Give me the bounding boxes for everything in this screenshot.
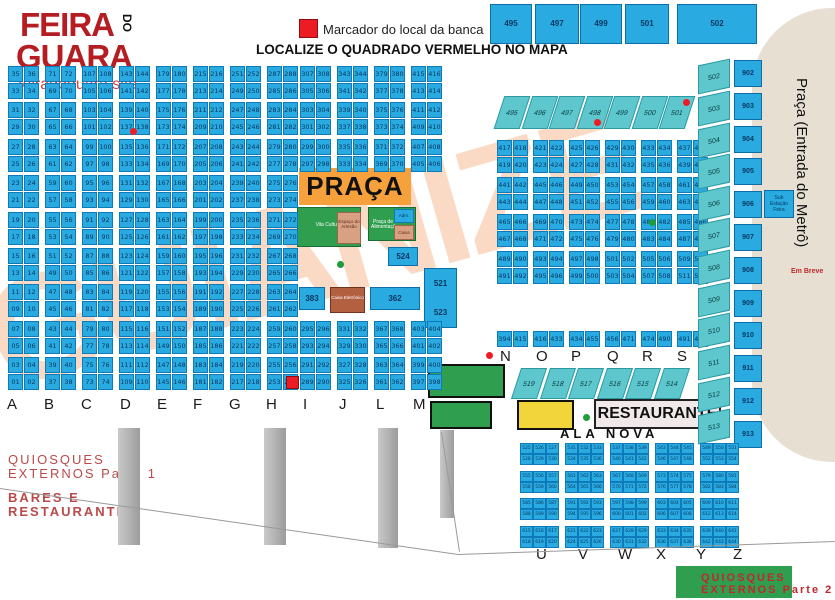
stall-cell: 217 [230, 374, 245, 390]
stall-cell: 566 [591, 482, 604, 493]
stall-cell: 132 [135, 175, 150, 191]
stall-cell: 230 [246, 265, 261, 281]
em-breve-label: Em Breve [791, 268, 823, 275]
stall-cell: 120 [135, 284, 150, 300]
column-letter: J [339, 396, 355, 412]
stall-cell: 258 [283, 338, 298, 354]
stall-cell: 587 [546, 498, 559, 509]
stall-cell: 544 [668, 443, 681, 454]
stall-cell: 497 [569, 251, 584, 267]
stall-cell: 574 [668, 471, 681, 482]
stall-cell: 270 [283, 229, 298, 245]
stall-cell: 375 [374, 102, 389, 118]
stall-cell: 333 [337, 156, 352, 172]
stall-cell: 129 [119, 192, 134, 208]
stall-cell: 272 [283, 212, 298, 228]
stall-cell: 58 [61, 192, 76, 208]
stall-cell: 575 [681, 471, 694, 482]
stall-cell: 135 [119, 139, 134, 155]
stall-cell: 204 [209, 175, 224, 191]
stall-cell: 102 [98, 119, 113, 135]
stall-cell: 282 [283, 119, 298, 135]
stall-cell: 276 [283, 175, 298, 191]
stall-cell: 256 [283, 357, 298, 373]
stall-cell: 231 [230, 248, 245, 264]
stall-cell: 527 [546, 443, 559, 454]
stall-cell: 403 [411, 321, 426, 337]
column-letter: U [536, 546, 552, 562]
stall-cell: 08 [24, 321, 39, 337]
stall-cell: 169 [156, 156, 171, 172]
stall-cell: 641 [726, 526, 739, 537]
stall-cell: 75 [82, 357, 97, 373]
stall-cell: 224 [246, 321, 261, 337]
stall-cell: 118 [135, 301, 150, 317]
stall-cell: 340 [353, 102, 368, 118]
stall-cell: 537 [610, 443, 623, 454]
stall-cell: 583 [713, 482, 726, 493]
stall-cell: 569 [636, 471, 649, 482]
stall-cell: 240 [246, 175, 261, 191]
stall-cell: 912 [734, 388, 762, 415]
stall-cell: 582 [700, 482, 713, 493]
stall-cell: 490 [513, 251, 528, 267]
stall-cell: 640 [713, 526, 726, 537]
stall-cell: 29 [8, 119, 23, 135]
stall-cell: 295 [300, 321, 315, 337]
legend-marker-swatch [299, 19, 318, 38]
stall-cell: 455 [585, 331, 600, 347]
stall-cell: 477 [605, 214, 620, 230]
column-letter: I [303, 396, 319, 412]
stall-cell: 616 [533, 526, 546, 537]
stall-cell: 10 [24, 301, 39, 317]
stall-cell: 536 [591, 454, 604, 465]
stall-cell: 97 [82, 156, 97, 172]
stall-cell: 400 [427, 357, 442, 373]
stall-cell: 68 [61, 102, 76, 118]
praca-title: PRAÇA [306, 171, 403, 201]
stall-cell: 127 [119, 212, 134, 228]
stall-cell: 241 [230, 156, 245, 172]
stall-cell: 491 [677, 331, 692, 347]
stall-cell: 260 [283, 321, 298, 337]
stall-cell: 501 [605, 251, 620, 267]
stall-cell: 70 [61, 83, 76, 99]
stall-cell: 502 [621, 251, 636, 267]
stall-cell: 12 [24, 284, 39, 300]
stall-cell: 434 [569, 331, 584, 347]
stall-cell: 443 [497, 194, 512, 210]
stall-cell: 72 [61, 66, 76, 82]
stall-cell: 128 [135, 212, 150, 228]
stall-cell: 485 [677, 214, 692, 230]
stall-cell: 371 [374, 139, 389, 155]
stall-cell: 40 [61, 357, 76, 373]
stall-cell: 263 [267, 284, 282, 300]
stall-cell: 436 [657, 157, 672, 173]
stall-cell: 605 [681, 498, 694, 509]
stall-cell: 484 [657, 231, 672, 247]
stall-cell: 161 [156, 229, 171, 245]
stall-cell: 450 [585, 177, 600, 193]
stall-cell: 415 [513, 331, 528, 347]
stall-cell: 586 [533, 498, 546, 509]
column-letter: M [413, 396, 429, 412]
stall-cell: 435 [641, 157, 656, 173]
stall-cell: 123 [119, 248, 134, 264]
stall-cell: 117 [119, 301, 134, 317]
stall-cell: 335 [337, 139, 352, 155]
stall-cell: 34 [24, 83, 39, 99]
stall-cell: 25 [8, 156, 23, 172]
stall-cell: 152 [172, 321, 187, 337]
caixa-chip: Caixa [394, 225, 414, 240]
stall-cell: 601 [623, 509, 636, 520]
stall-cell: 74 [98, 374, 113, 390]
column-letter: L [376, 396, 392, 412]
stall-cell: 542 [636, 454, 649, 465]
entrance-marker [130, 128, 137, 135]
stall-cell: 413 [411, 83, 426, 99]
stall-cell: 196 [209, 248, 224, 264]
stall-cell: 142 [135, 83, 150, 99]
stall-cell: 367 [374, 321, 389, 337]
column-letter: G [229, 396, 245, 412]
stall-cell: 561 [565, 471, 578, 482]
stall-cell: 180 [172, 66, 187, 82]
stall-cell: 577 [668, 482, 681, 493]
stall-cell: 564 [565, 482, 578, 493]
stall-cell: 233 [230, 229, 245, 245]
espaco-artesao-label: Espaço do Artesão [338, 213, 360, 229]
stall-cell: 183 [193, 357, 208, 373]
stall-cell: 535 [578, 454, 591, 465]
stall-cell: 24 [24, 175, 39, 191]
stall-cell: 437 [677, 140, 692, 156]
stall-cell: 557 [546, 471, 559, 482]
stall-cell: 165 [156, 192, 171, 208]
stall-cell: 104 [98, 102, 113, 118]
caixa-eletronico-box: Caixa Eletrônico [330, 287, 365, 313]
stall-cell: 191 [193, 284, 208, 300]
stall-cell: 108 [98, 66, 113, 82]
stall-cell: 401 [411, 338, 426, 354]
column-letter: B [44, 396, 60, 412]
stall-cell: 290 [316, 374, 331, 390]
stall-cell: 64 [61, 139, 76, 155]
stall-cell: 327 [337, 357, 352, 373]
stall-cell: 247 [230, 102, 245, 118]
stall-cell: 09 [8, 301, 23, 317]
stall-cell: 02 [24, 374, 39, 390]
stall-cell: 285 [267, 83, 282, 99]
stall-cell: 186 [209, 338, 224, 354]
stall-cell: 458 [657, 177, 672, 193]
stall-cell: 57 [45, 192, 60, 208]
stall-cell: 474 [641, 331, 656, 347]
stall-cell: 149 [156, 338, 171, 354]
stall-cell: 463 [677, 194, 692, 210]
stall-cell: 468 [513, 231, 528, 247]
stall-cell: 447 [533, 194, 548, 210]
stall-cell: 189 [193, 301, 208, 317]
column-letter: H [266, 396, 282, 412]
stall-cell: 126 [135, 229, 150, 245]
stall-cell: 111 [119, 357, 134, 373]
column-letter: R [642, 348, 658, 364]
stall-cell: 425 [569, 140, 584, 156]
stall-cell: 579 [700, 471, 713, 482]
stall-cell: 498 [585, 251, 600, 267]
ala-nova-label: ALA NOVA [560, 426, 658, 441]
stall-cell: 624 [565, 537, 578, 548]
stall-cell: 67 [45, 102, 60, 118]
stall-cell: 213 [193, 83, 208, 99]
stall-cell: 297 [300, 156, 315, 172]
stall-cell: 54 [61, 229, 76, 245]
stall-cell: 555 [520, 471, 533, 482]
column-letter: X [656, 546, 672, 562]
stall-cell: 511 [677, 268, 692, 284]
stall-cell: 455 [605, 194, 620, 210]
stall-cell: 175 [156, 102, 171, 118]
stall-cell: 156 [172, 284, 187, 300]
stall-cell: 506 [698, 186, 730, 222]
stall-cell: 168 [172, 175, 187, 191]
stall-cell: 473 [569, 214, 584, 230]
stall-cell: 609 [700, 498, 713, 509]
stall-cell: 595 [578, 509, 591, 520]
stall-cell: 456 [621, 194, 636, 210]
stall-cell: 65 [45, 119, 60, 135]
stall-cell: 404 [427, 321, 442, 337]
stall-cell: 71 [45, 66, 60, 82]
column-letter: P [571, 348, 587, 364]
stall-cell: 525 [520, 443, 533, 454]
stall-cell: 49 [45, 265, 60, 281]
stall-cell: 446 [549, 177, 564, 193]
stall-521-523: 521 523 [424, 268, 457, 328]
stall-cell: 222 [246, 338, 261, 354]
stall-cell: 286 [283, 83, 298, 99]
stall-cell: 291 [300, 357, 315, 373]
pillar [118, 428, 140, 545]
stall-cell: 632 [636, 537, 649, 548]
stall-cell: 434 [657, 140, 672, 156]
stall-cell: 603 [655, 498, 668, 509]
stall-cell: 475 [569, 231, 584, 247]
stall-cell: 22 [24, 192, 39, 208]
stall-cell: 146 [172, 374, 187, 390]
stall-cell: 611 [726, 498, 739, 509]
pillar [378, 428, 398, 548]
stall-cell: 368 [390, 321, 405, 337]
stall-cell: 39 [45, 357, 60, 373]
stall-cell: 31 [8, 102, 23, 118]
stall-cell: 44 [61, 321, 76, 337]
stall-cell: 145 [156, 374, 171, 390]
stall-cell: 540 [610, 454, 623, 465]
stall-cell: 452 [585, 194, 600, 210]
stall-cell: 60 [61, 175, 76, 191]
stall-cell: 505 [698, 154, 730, 190]
stall-cell: 599 [636, 498, 649, 509]
stall-cell: 187 [193, 321, 208, 337]
stall-cell: 226 [246, 301, 261, 317]
stall-cell: 210 [209, 119, 224, 135]
stall-cell: 344 [353, 66, 368, 82]
stall-cell: 451 [569, 194, 584, 210]
stall-cell: 232 [246, 248, 261, 264]
stall-cell: 416 [533, 331, 548, 347]
stall-cell: 511 [698, 345, 730, 381]
stall-cell: 293 [300, 338, 315, 354]
stall-cell: 07 [8, 321, 23, 337]
stall-cell: 501 [625, 4, 669, 44]
stall-cell: 119 [119, 284, 134, 300]
stall-cell: 906 [734, 191, 762, 218]
stall-cell: 262 [283, 301, 298, 317]
stall-cell: 907 [734, 224, 762, 251]
stall-cell: 507 [641, 268, 656, 284]
stall-cell: 495 [490, 4, 532, 44]
stall-cell: 33 [8, 83, 23, 99]
stall-cell: 432 [621, 157, 636, 173]
stall-cell: 423 [533, 157, 548, 173]
stall-cell: 469 [533, 214, 548, 230]
stall-cell: 342 [353, 83, 368, 99]
stall-cell: 221 [230, 338, 245, 354]
stall-cell: 479 [605, 231, 620, 247]
stall-cell: 563 [591, 471, 604, 482]
stall-cell: 623 [591, 526, 604, 537]
stall-cell: 589 [533, 509, 546, 520]
stall-cell: 43 [45, 321, 60, 337]
stall-cell: 331 [337, 321, 352, 337]
stall-cell: 252 [246, 66, 261, 82]
stall-cell: 96 [98, 175, 113, 191]
column-letter: C [81, 396, 97, 412]
stall-cell: 572 [636, 482, 649, 493]
stall-cell: 442 [513, 177, 528, 193]
stall-cell: 531 [565, 443, 578, 454]
stall-cell: 573 [655, 471, 668, 482]
stall-cell: 550 [713, 443, 726, 454]
stall-cell: 578 [681, 482, 694, 493]
stall-cell: 911 [734, 355, 762, 382]
stall-cell: 197 [193, 229, 208, 245]
stall-cell: 136 [135, 139, 150, 155]
stall-cell: 296 [316, 321, 331, 337]
column-letter: A [7, 396, 23, 412]
stall-cell: 334 [353, 156, 368, 172]
stall-523-label: 523 [425, 308, 456, 317]
stall-cell: 185 [193, 338, 208, 354]
stall-cell: 414 [427, 83, 442, 99]
column-letter: S [677, 348, 693, 364]
stall-cell: 164 [172, 212, 187, 228]
stall-cell: 602 [636, 509, 649, 520]
stall-cell: 610 [713, 498, 726, 509]
stall-cell: 66 [61, 119, 76, 135]
stall-cell: 61 [45, 156, 60, 172]
stall-cell: 539 [636, 443, 649, 454]
stall-cell: 402 [427, 338, 442, 354]
stall-cell: 151 [156, 321, 171, 337]
stall-cell: 101 [82, 119, 97, 135]
stall-cell: 225 [230, 301, 245, 317]
stall-cell: 283 [267, 102, 282, 118]
stall-cell: 590 [546, 509, 559, 520]
stall-cell: 158 [172, 265, 187, 281]
stall-cell: 558 [520, 482, 533, 493]
stall-cell: 19 [8, 212, 23, 228]
stall-cell: 444 [513, 194, 528, 210]
stall-cell: 363 [374, 357, 389, 373]
stall-cell: 379 [374, 66, 389, 82]
stall-362: 362 [370, 287, 420, 310]
stall-cell: 910 [734, 322, 762, 349]
stall-cell: 903 [734, 93, 762, 120]
column-letter: O [536, 348, 552, 364]
stall-cell: 482 [657, 214, 672, 230]
stall-cell: 493 [533, 251, 548, 267]
stall-cell: 430 [621, 140, 636, 156]
stall-cell: 271 [267, 212, 282, 228]
quiosques2-line1: QUIOSQUES [701, 572, 786, 584]
stall-cell: 580 [713, 471, 726, 482]
stall-cell: 377 [374, 83, 389, 99]
stall-cell: 265 [267, 265, 282, 281]
stall-cell: 330 [353, 338, 368, 354]
stall-cell: 627 [610, 526, 623, 537]
stall-cell: 478 [621, 214, 636, 230]
stall-cell: 194 [209, 265, 224, 281]
stall-cell: 502 [698, 59, 730, 95]
stall-cell: 193 [193, 265, 208, 281]
stall-cell: 177 [156, 83, 171, 99]
stall-cell: 251 [230, 66, 245, 82]
stall-cell: 14 [24, 265, 39, 281]
stall-cell: 13 [8, 265, 23, 281]
stall-cell: 201 [193, 192, 208, 208]
stall-cell: 300 [316, 139, 331, 155]
stall-cell: 05 [8, 338, 23, 354]
stall-cell: 195 [193, 248, 208, 264]
stall-cell: 614 [726, 509, 739, 520]
stall-cell: 122 [135, 265, 150, 281]
stall-cell: 607 [668, 509, 681, 520]
stall-cell: 154 [172, 301, 187, 317]
stall-cell: 264 [283, 284, 298, 300]
stall-cell: 238 [246, 192, 261, 208]
stall-cell: 76 [98, 357, 113, 373]
stall-cell: 249 [230, 83, 245, 99]
stall-cell: 634 [668, 526, 681, 537]
stall-cell: 510 [698, 313, 730, 349]
stall-cell: 474 [585, 214, 600, 230]
stall-cell: 211 [193, 102, 208, 118]
stall-cell: 171 [156, 139, 171, 155]
stall-cell: 338 [353, 119, 368, 135]
stall-cell: 28 [24, 139, 39, 155]
stall-cell: 513 [698, 408, 730, 444]
stall-cell: 112 [135, 357, 150, 373]
stall-cell: 621 [565, 526, 578, 537]
stall-cell: 167 [156, 175, 171, 191]
stall-cell: 305 [300, 83, 315, 99]
